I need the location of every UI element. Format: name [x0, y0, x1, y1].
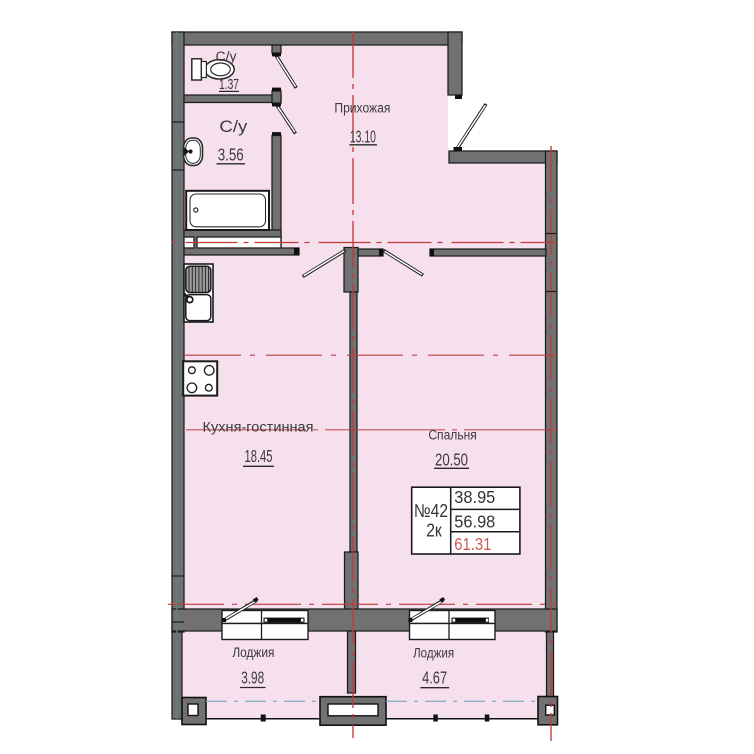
svg-text:38.95: 38.95 — [454, 487, 495, 507]
svg-text:С/у: С/у — [219, 118, 248, 136]
svg-text:13.10: 13.10 — [350, 127, 376, 147]
svg-text:Прихожая: Прихожая — [334, 101, 390, 116]
svg-text:№42: №42 — [414, 500, 448, 521]
svg-text:С/у: С/у — [216, 49, 237, 64]
svg-text:Лоджия: Лоджия — [232, 645, 274, 660]
svg-text:1.37: 1.37 — [219, 77, 239, 93]
svg-text:Лоджия: Лоджия — [413, 646, 454, 661]
svg-text:4.67: 4.67 — [422, 668, 447, 688]
svg-text:3.56: 3.56 — [218, 145, 244, 165]
svg-text:56.98: 56.98 — [454, 512, 495, 532]
svg-text:61.31: 61.31 — [454, 534, 491, 554]
svg-text:2к: 2к — [426, 520, 442, 541]
svg-text:Спальня: Спальня — [428, 428, 477, 443]
svg-text:3.98: 3.98 — [241, 668, 264, 688]
svg-text:18.45: 18.45 — [245, 446, 273, 466]
svg-text:Кухня-гостинная: Кухня-гостинная — [203, 420, 314, 435]
svg-text:20.50: 20.50 — [435, 450, 468, 470]
